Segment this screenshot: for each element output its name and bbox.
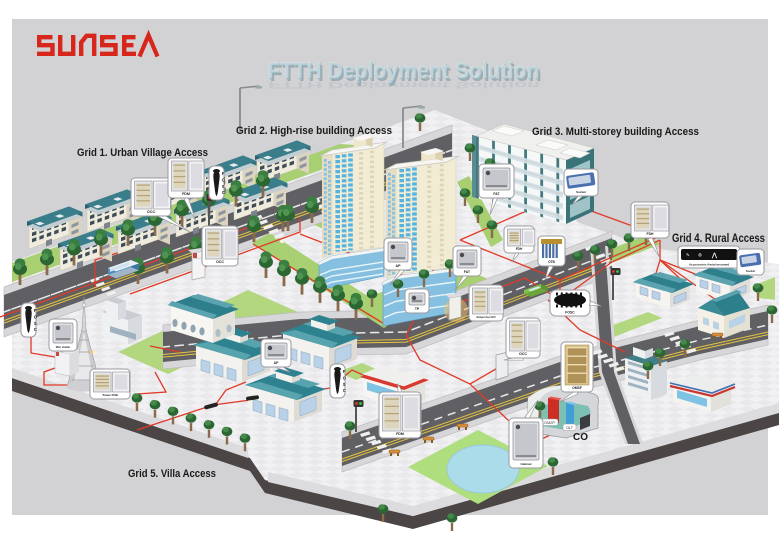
svg-text:Grid 5. Villa Access: Grid 5. Villa Access [128,468,216,480]
svg-text:C: C [222,190,225,195]
svg-text:TP: TP [415,307,420,311]
svg-text:Socket: Socket [576,190,586,194]
svg-text:OCC: OCC [519,352,527,356]
svg-text:Grid 1. Urban Village Access: Grid 1. Urban Village Access [77,147,208,159]
svg-text:Socket: Socket [746,269,755,273]
svg-text:FDH: FDH [516,247,523,251]
svg-text:S: S [343,382,346,387]
svg-text:F: F [343,369,346,374]
svg-text:C: C [34,327,37,332]
svg-text:FTTH Deployment Solution: FTTH Deployment Solution [267,57,539,83]
svg-text:Grid 4. Rural Access: Grid 4. Rural Access [672,233,765,245]
svg-text:FDM: FDM [396,432,404,436]
svg-text:Jumper free OCC: Jumper free OCC [476,316,496,319]
svg-text:F: F [222,171,225,176]
svg-text:FOSC: FOSC [565,311,575,315]
svg-text:OM2P: OM2P [544,421,555,425]
svg-text:Tower FDB: Tower FDB [102,393,118,397]
svg-text:Cabinet: Cabinet [520,462,531,466]
svg-text:FTTH Deployment Solution: FTTH Deployment Solution [268,80,540,91]
svg-text:OMSF: OMSF [572,386,582,390]
svg-text:OLT: OLT [566,426,574,430]
svg-text:FAT: FAT [464,270,471,274]
svg-text:S: S [222,184,225,189]
svg-text:CO: CO [573,432,588,443]
svg-text:Grid 2. High-rise building Acc: Grid 2. High-rise building Access [236,125,392,137]
svg-text:F: F [34,308,37,313]
svg-text:FDH: FDH [647,232,655,236]
svg-text:S: S [34,321,37,326]
svg-text:Grid 3. Multi-storey building: Grid 3. Multi-storey building Access [532,126,699,138]
svg-text:FAT: FAT [493,192,500,196]
svg-text:Mini shelter: Mini shelter [56,345,70,349]
svg-text:C: C [343,388,346,393]
svg-text:AP: AP [396,264,402,268]
svg-text:OCC: OCC [216,260,224,264]
svg-text:FDM: FDM [182,192,190,196]
svg-text:OCC: OCC [147,210,156,214]
svg-text:OTB: OTB [548,260,555,264]
svg-text:✎: ✎ [686,253,690,258]
svg-text:Accessories Aerial mounted: Accessories Aerial mounted [689,263,729,267]
svg-text:AP: AP [274,361,279,365]
